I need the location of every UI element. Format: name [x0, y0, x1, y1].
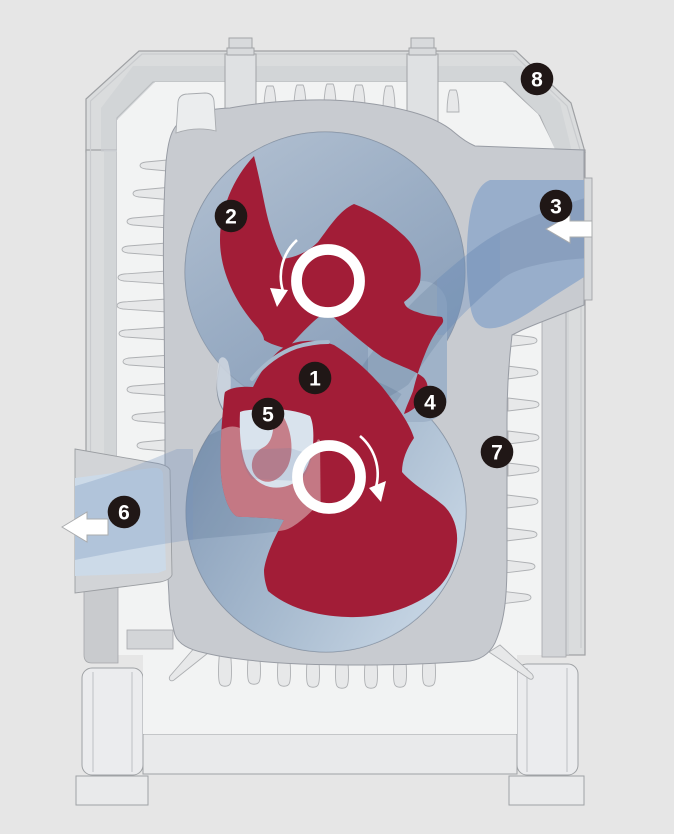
svg-text:6: 6 [118, 502, 130, 525]
svg-text:5: 5 [262, 404, 274, 427]
svg-text:3: 3 [550, 196, 562, 219]
svg-text:8: 8 [531, 69, 543, 92]
svg-text:7: 7 [491, 442, 503, 465]
svg-text:4: 4 [424, 392, 436, 415]
svg-text:1: 1 [309, 368, 321, 391]
svg-text:2: 2 [225, 206, 237, 229]
